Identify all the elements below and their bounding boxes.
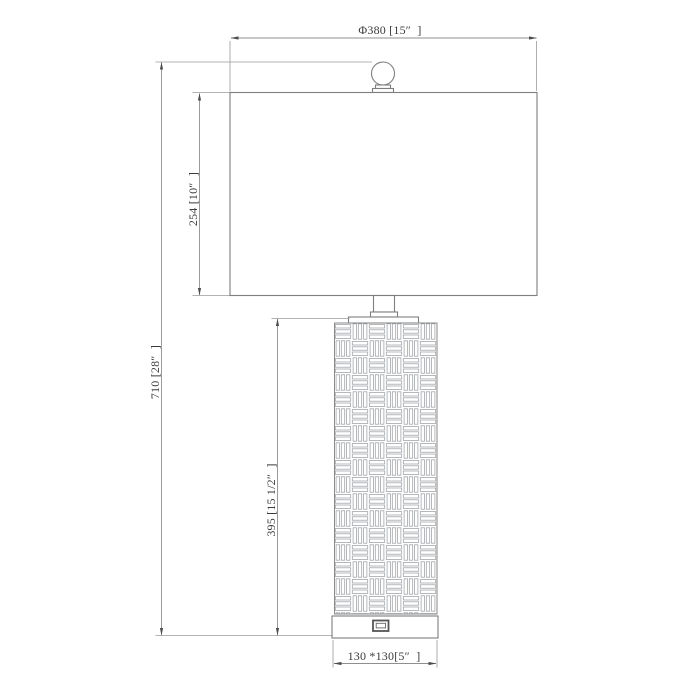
base-footprint-label: 130 *130[5″ ]: [348, 649, 421, 663]
shade-diameter-label: Φ380 [15″ ]: [358, 23, 421, 37]
overall-height-label: 710 [28″ ]: [148, 345, 162, 399]
lamp-shade: [230, 93, 537, 296]
lamp-body-weave: [335, 323, 438, 614]
shade-height-label: 254 [10″ ]: [186, 172, 200, 226]
dim-base-footprint: 130 *130[5″ ]: [333, 640, 437, 668]
drawing-canvas: Φ380 [15″ ] 254 [10″ ] 710 [28″ ]: [0, 0, 700, 700]
finial-collar-base: [373, 89, 394, 93]
neck-flange: [371, 312, 398, 317]
usb-port-icon: [373, 621, 389, 632]
body-cap-plate: [349, 317, 419, 323]
lamp-dimension-drawing: Φ380 [15″ ] 254 [10″ ] 710 [28″ ]: [0, 0, 700, 700]
lamp-outline: [230, 62, 537, 638]
body-height-label: 395 [15 1/2″ ]: [264, 463, 278, 536]
neck: [374, 296, 395, 313]
finial-ball: [372, 62, 395, 85]
dim-shade-height: 254 [10″ ]: [186, 93, 230, 296]
